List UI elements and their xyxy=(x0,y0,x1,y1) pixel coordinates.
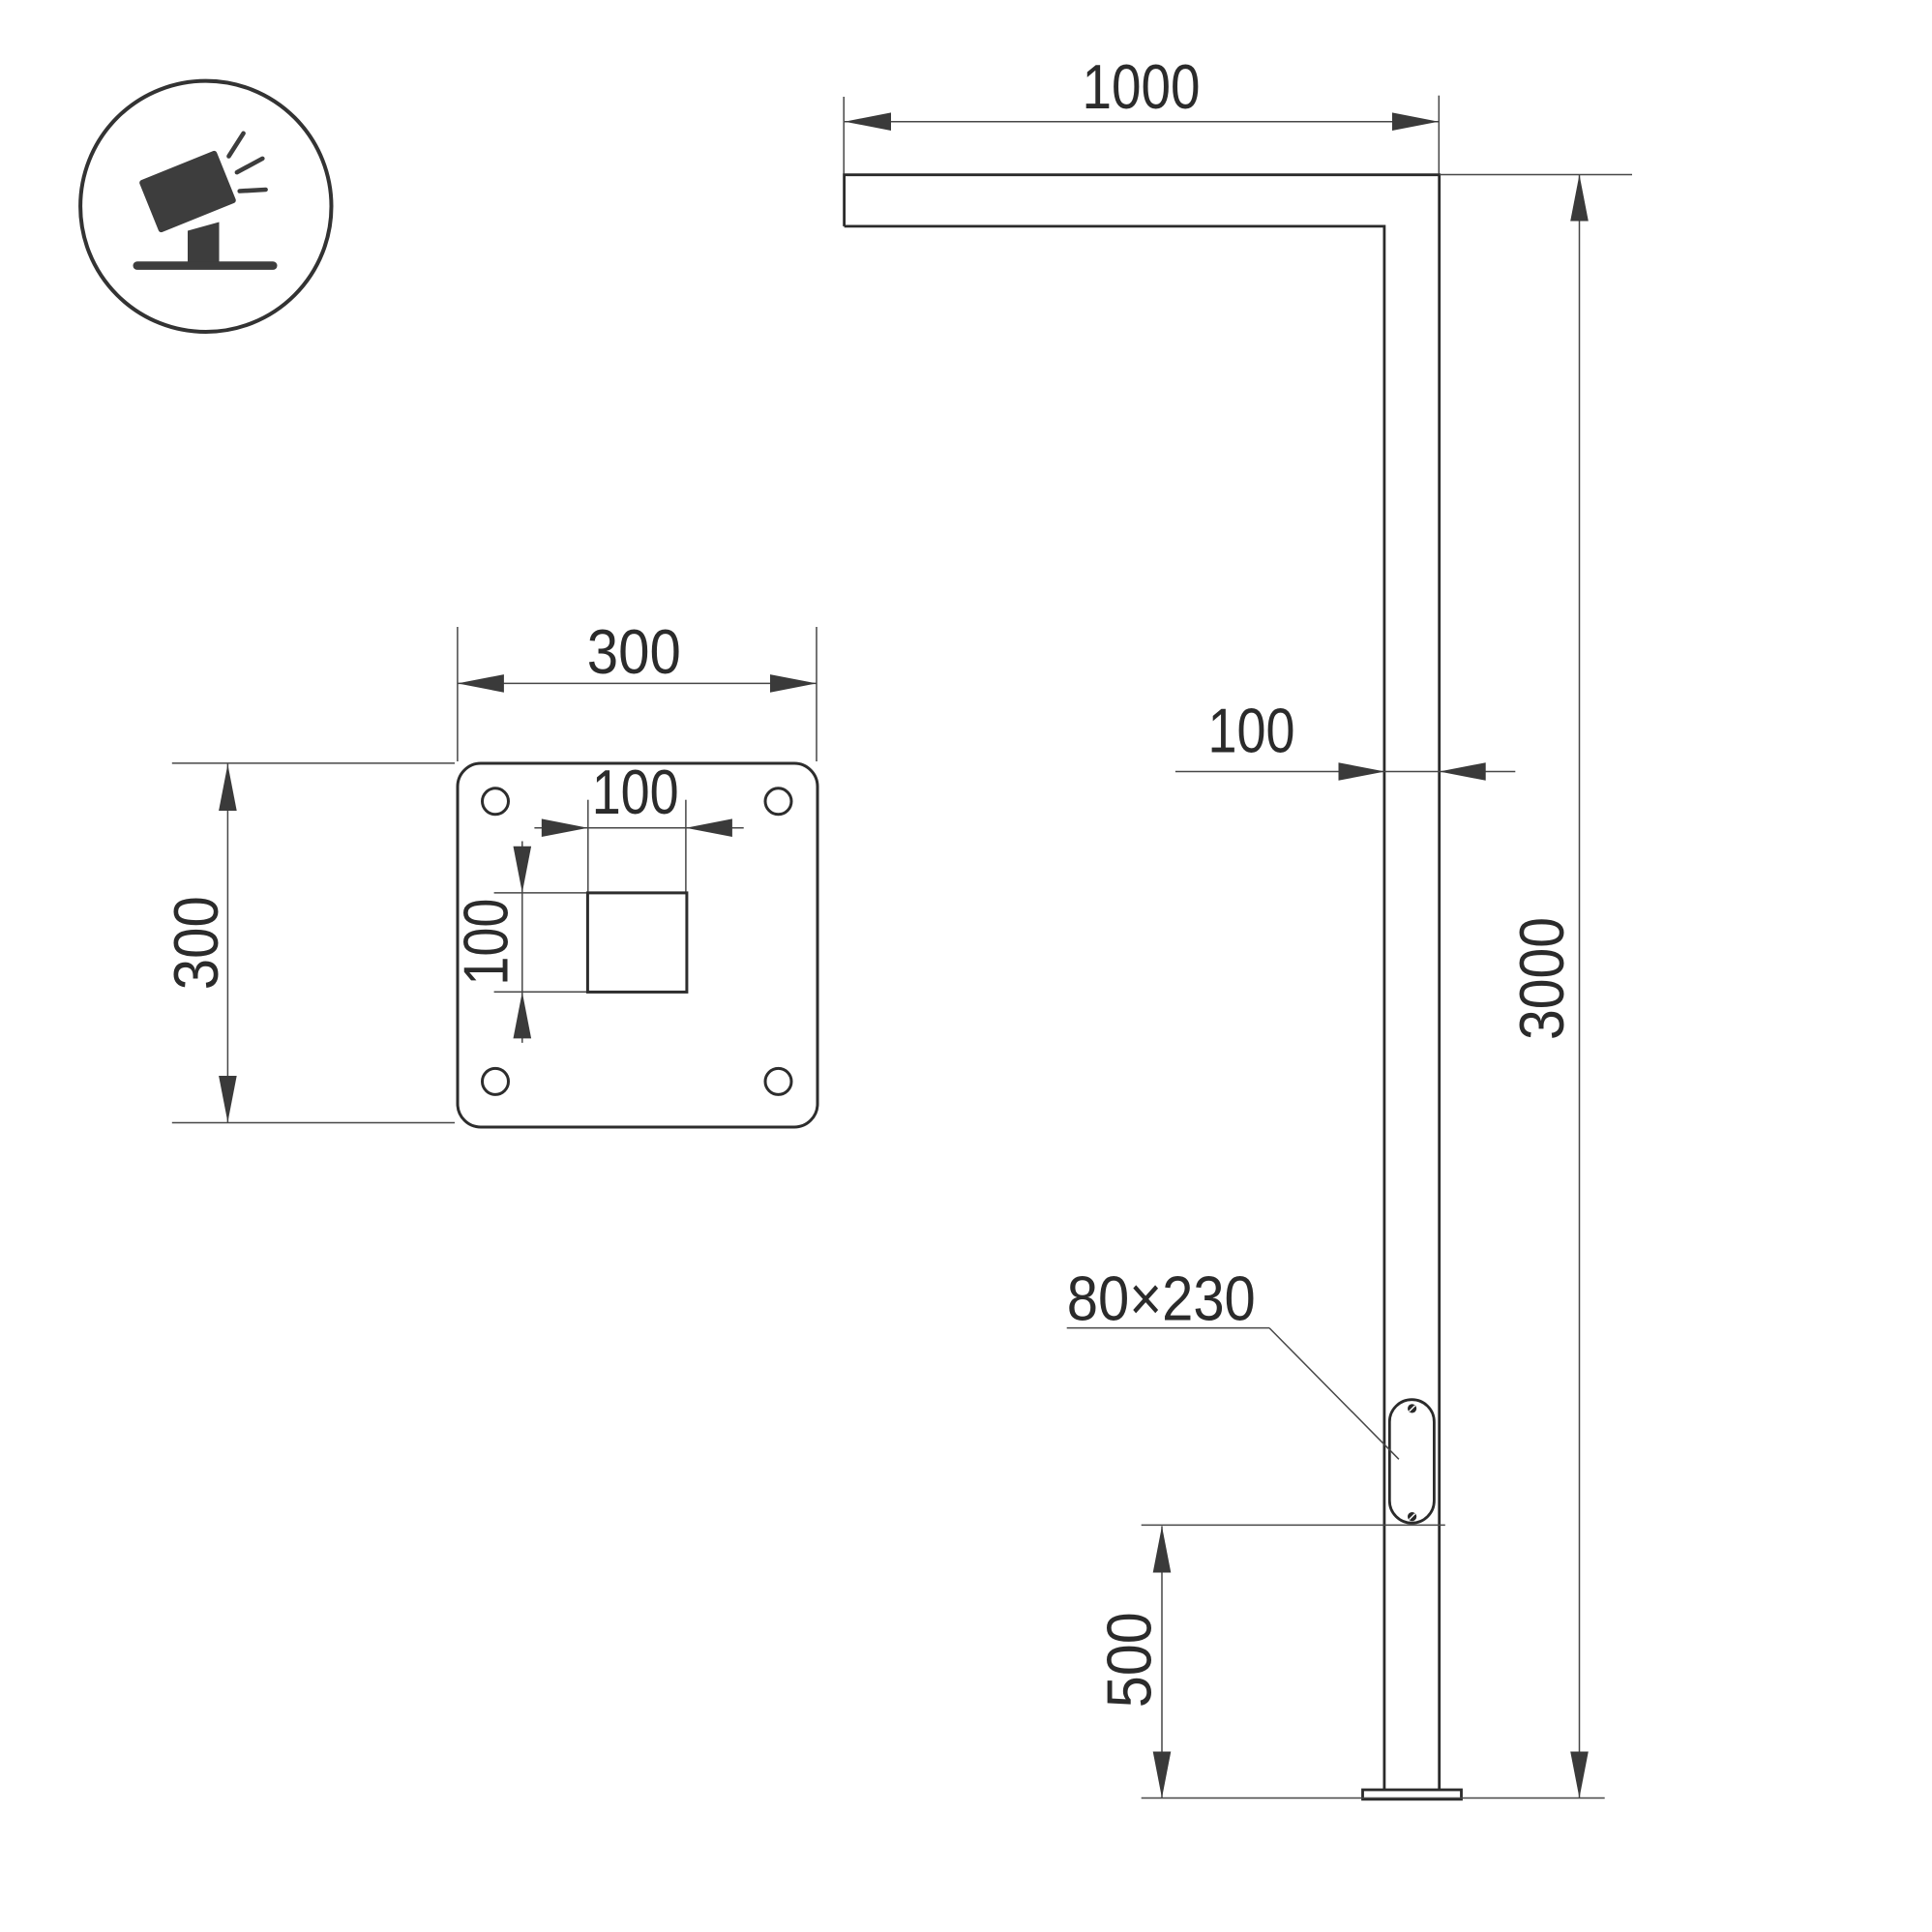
svg-text:1000: 1000 xyxy=(1083,52,1201,122)
svg-text:300: 300 xyxy=(162,896,231,990)
svg-text:100: 100 xyxy=(592,758,679,827)
svg-text:500: 500 xyxy=(1095,1612,1165,1708)
svg-text:100: 100 xyxy=(1208,697,1295,766)
svg-text:3000: 3000 xyxy=(1507,917,1577,1040)
svg-text:80×230: 80×230 xyxy=(1067,1264,1256,1334)
svg-text:100: 100 xyxy=(451,899,520,986)
svg-text:300: 300 xyxy=(587,617,681,687)
